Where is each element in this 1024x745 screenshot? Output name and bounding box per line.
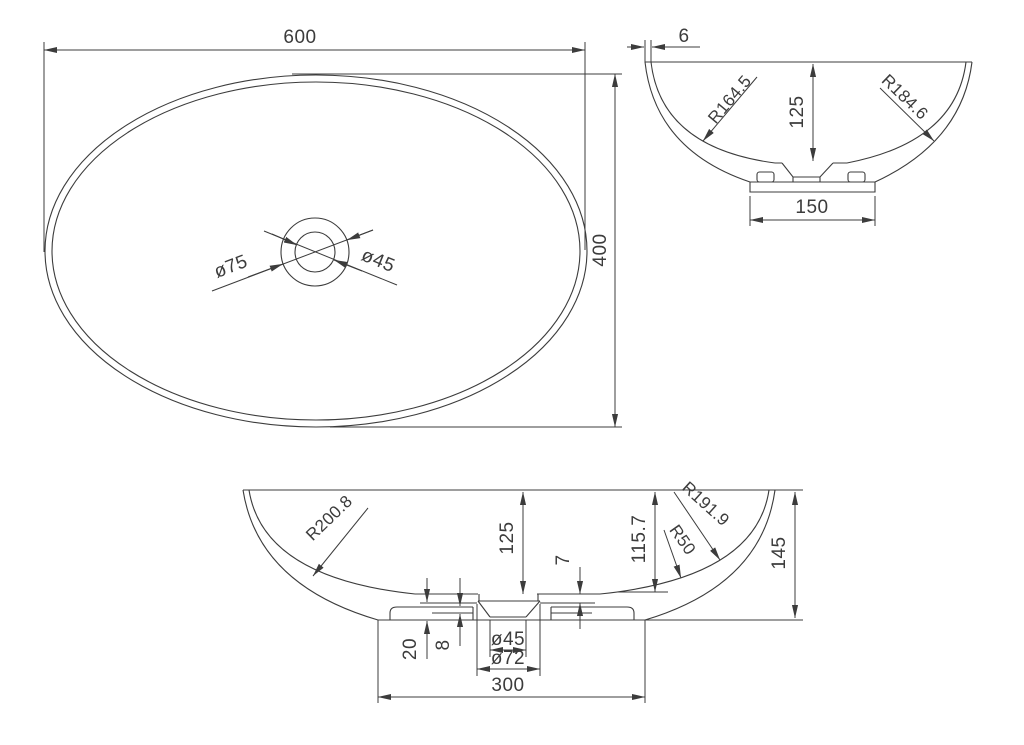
leader-drain-inner-arrow-1: [272, 234, 297, 245]
dim-text-outer-radius: R184.6: [878, 71, 932, 124]
washbasin-drawing: 600 400 ø75 ø45 6 R164.5: [0, 0, 1024, 745]
dim-text-recess: 20: [400, 638, 421, 660]
dim-text-step: 8: [433, 639, 454, 650]
dim-text-height: 400: [590, 233, 611, 266]
leader-drain-outer-arrow-1: [248, 264, 283, 277]
dim-text-width: 600: [283, 27, 316, 48]
side-inner-wall-right: [847, 62, 966, 163]
side-section-view: 6 R164.5 125 R184.6 150: [627, 26, 972, 226]
dim-text-total-height: 145: [769, 536, 790, 569]
front-section-view: R200.8 125 7 115.7 R191.9 R50 145 20 8 ø: [243, 478, 803, 703]
dim-text-wall: 6: [678, 26, 689, 47]
front-recess-panel-left: [390, 607, 473, 620]
basin-inner-rim: [52, 82, 580, 420]
dim-text-drain-hole: ø45: [491, 629, 525, 650]
dim-text-fillet-radius: R50: [666, 521, 700, 558]
dim-text-front-inner-radius: R191.9: [678, 478, 733, 530]
side-wall-extension-lines: [645, 40, 651, 62]
dim-text-inner-radius: R164.5: [704, 72, 755, 128]
dim-text-front-outer-radius: R200.8: [302, 492, 356, 545]
side-foot-right: [848, 172, 865, 182]
dim-text-front-base: 300: [491, 675, 524, 696]
side-drain-boss: [782, 163, 833, 182]
dim-text-floor: 7: [553, 554, 574, 565]
technical-drawing-canvas: 600 400 ø75 ø45 6 R164.5: [0, 0, 1024, 745]
front-recess-panel-right: [551, 607, 634, 620]
front-outer-wall-left: [243, 490, 378, 620]
dim-text-side-depth: 125: [787, 95, 808, 128]
top-view: 600 400 ø75 ø45: [44, 27, 622, 427]
side-foot-left: [757, 172, 774, 182]
leader-drain-outer-arrow-2: [347, 230, 373, 240]
dim-text-drain-recess: ø72: [491, 648, 525, 669]
basin-outer-rim: [45, 75, 587, 427]
dim-text-side-base: 150: [795, 197, 828, 218]
dim-text-front-depth: 125: [497, 521, 518, 554]
front-drain-funnel: [478, 594, 540, 617]
side-base: [750, 182, 875, 192]
dim-text-inner-depth: 115.7: [629, 515, 650, 564]
